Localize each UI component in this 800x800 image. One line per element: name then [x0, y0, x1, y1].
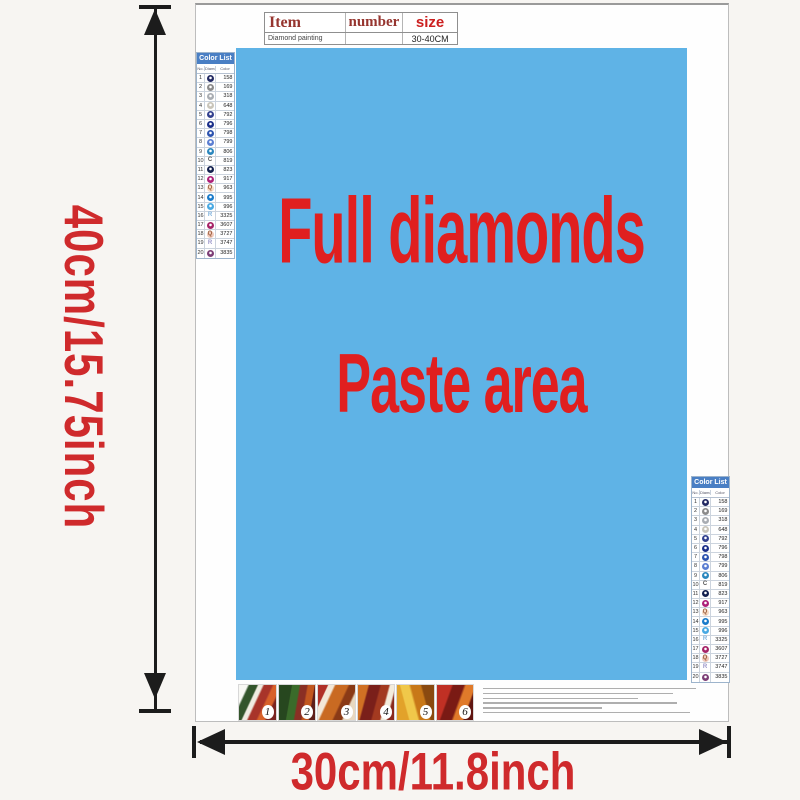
color-row-number: 13 — [197, 184, 205, 192]
diamond-symbol-cell — [205, 249, 216, 258]
color-list-title: Color List — [692, 477, 729, 488]
color-row-number: 16 — [197, 212, 205, 220]
color-row: 2169 — [692, 507, 729, 516]
dmc-color-code: 169 — [216, 84, 234, 90]
color-row-number: 19 — [197, 239, 205, 247]
color-list-rows: 11582169331846485792679677988799980610C8… — [692, 498, 729, 682]
dmc-color-code: 917 — [216, 176, 234, 182]
dmc-color-code: 796 — [216, 121, 234, 127]
color-row: 7798 — [692, 553, 729, 562]
dmc-color-code: 3727 — [711, 655, 729, 661]
color-row: 10C819 — [197, 157, 234, 166]
color-row-number: 7 — [692, 553, 700, 561]
arrow-line — [154, 9, 158, 710]
diamond-symbol-cell — [700, 544, 711, 552]
diamond-symbol-letter: Q — [207, 231, 214, 238]
dmc-color-code: 3325 — [711, 637, 729, 643]
step-thumbnail-6: 6 — [436, 684, 475, 721]
color-row-number: 1 — [692, 498, 700, 506]
color-row-number: 6 — [692, 544, 700, 552]
diamond-symbol-icon — [702, 563, 709, 570]
diamond-symbol-icon — [207, 166, 214, 173]
diamond-symbol-icon — [207, 130, 214, 137]
diamond-symbol-icon — [702, 572, 709, 579]
diamond-symbol-letter: R — [703, 636, 707, 643]
color-row-number: 17 — [692, 645, 700, 653]
color-row-number: 14 — [692, 617, 700, 625]
color-row: 203835 — [692, 673, 729, 682]
arrow-right-icon — [699, 729, 727, 755]
diamond-symbol-cell — [205, 129, 216, 137]
color-row: 19R3747 — [197, 239, 234, 248]
diamond-symbol-cell — [205, 74, 216, 82]
diamond-symbol-cell — [700, 498, 711, 506]
diamond-symbol-cell — [205, 221, 216, 229]
size-header: size — [403, 13, 457, 32]
col-no: No. — [692, 490, 700, 495]
diamond-symbol-cell — [700, 599, 711, 607]
diamond-symbol-cell: C — [205, 157, 216, 165]
diamond-symbol-icon — [702, 545, 709, 552]
diamond-symbol-cell — [205, 166, 216, 174]
diamond-symbol-icon — [702, 508, 709, 515]
color-row-number: 4 — [692, 526, 700, 534]
diamond-symbol-cell: R — [205, 239, 216, 247]
step-thumbnail-4: 4 — [357, 684, 396, 721]
dmc-color-code: 963 — [711, 609, 729, 615]
color-row-number: 20 — [197, 249, 205, 258]
diamond-symbol-icon — [207, 111, 214, 118]
color-row-number: 5 — [692, 535, 700, 543]
color-row: 18Q3727 — [197, 230, 234, 239]
diamond-symbol-letter: R — [208, 212, 212, 219]
diamond-symbol-cell — [700, 553, 711, 561]
dmc-color-code: 318 — [216, 93, 234, 99]
color-row: 13Q963 — [692, 608, 729, 617]
diamond-symbol-cell: R — [700, 636, 711, 644]
diamond-symbol-icon — [702, 535, 709, 542]
color-row: 3318 — [692, 516, 729, 525]
color-row-number: 12 — [692, 599, 700, 607]
color-row-number: 3 — [197, 92, 205, 100]
step-number-badge: 6 — [459, 705, 471, 719]
dmc-color-code: 648 — [216, 103, 234, 109]
diamond-symbol-cell — [205, 120, 216, 128]
color-row-number: 4 — [197, 102, 205, 110]
col-color: Color — [216, 66, 234, 71]
dmc-color-code: 169 — [711, 508, 729, 514]
color-row: 3318 — [197, 92, 234, 101]
diamond-symbol-icon — [207, 93, 214, 100]
diamond-symbol-cell — [205, 175, 216, 183]
color-row: 8799 — [197, 138, 234, 147]
color-list-rows: 11582169331846485792679677988799980610C8… — [197, 74, 234, 258]
color-row-number: 2 — [692, 507, 700, 515]
item-table-header-row: Item number size — [265, 13, 457, 33]
diamond-symbol-icon — [702, 517, 709, 524]
color-row-number: 18 — [692, 654, 700, 662]
diamond-symbol-icon — [207, 250, 214, 257]
color-row-number: 9 — [692, 572, 700, 580]
item-table-value-row: Diamond painting 30-40CM — [265, 33, 457, 44]
color-row-number: 8 — [692, 562, 700, 570]
dmc-color-code: 3835 — [711, 674, 729, 680]
color-row: 6796 — [197, 120, 234, 129]
color-row: 11823 — [197, 166, 234, 175]
step-thumbnail-3: 3 — [317, 684, 356, 721]
diamond-symbol-cell — [700, 516, 711, 524]
diamond-symbol-cell: Q — [205, 184, 216, 192]
step-thumbnail-2: 2 — [278, 684, 317, 721]
color-row: 16R3325 — [197, 212, 234, 221]
color-row: 15996 — [692, 627, 729, 636]
diamond-symbol-cell — [700, 535, 711, 543]
diamond-symbol-cell: R — [205, 212, 216, 220]
dmc-color-code: 3747 — [711, 664, 729, 670]
fine-print-line — [483, 712, 690, 713]
color-row: 2169 — [197, 83, 234, 92]
dmc-color-code: 3747 — [216, 240, 234, 246]
diamond-symbol-icon — [207, 139, 214, 146]
dmc-color-code: 996 — [711, 628, 729, 634]
dmc-color-code: 963 — [216, 185, 234, 191]
width-dimension-label: 30cm/11.8inch — [291, 742, 576, 800]
col-color: Color — [711, 490, 729, 495]
diamond-symbol-icon — [207, 222, 214, 229]
dmc-color-code: 3727 — [216, 231, 234, 237]
step-number-badge: 3 — [341, 705, 353, 719]
dmc-color-code: 158 — [216, 75, 234, 81]
dmc-color-code: 995 — [711, 619, 729, 625]
color-row: 16R3325 — [692, 636, 729, 645]
diamond-symbol-icon — [207, 75, 214, 82]
diamond-symbol-icon — [702, 499, 709, 506]
color-row: 5792 — [197, 111, 234, 120]
step-thumbnail-1: 1 — [238, 684, 277, 721]
color-row: 11823 — [692, 590, 729, 599]
number-value — [346, 33, 404, 44]
color-row: 10C819 — [692, 581, 729, 590]
step-number-badge: 4 — [380, 705, 392, 719]
diamond-symbol-cell: Q — [205, 230, 216, 238]
diamond-symbol-letter: Q — [702, 609, 709, 616]
diamond-symbol-icon — [207, 148, 214, 155]
color-row-number: 18 — [197, 230, 205, 238]
color-row-number: 14 — [197, 193, 205, 201]
diamond-symbol-letter: C — [703, 581, 707, 588]
paste-area-title-line1: Full diamonds — [236, 177, 687, 284]
diamond-symbol-cell — [700, 673, 711, 682]
dmc-color-code: 648 — [711, 527, 729, 533]
diamond-symbol-icon — [702, 646, 709, 653]
diamond-symbol-cell — [205, 111, 216, 119]
color-row: 203835 — [197, 249, 234, 258]
color-row-number: 9 — [197, 148, 205, 156]
color-row: 7798 — [197, 129, 234, 138]
diamond-symbol-icon — [207, 194, 214, 201]
step-number-badge: 2 — [301, 705, 313, 719]
col-diamond: Diamond — [205, 66, 216, 71]
color-row-number: 15 — [692, 627, 700, 635]
color-row: 12917 — [692, 599, 729, 608]
diamond-symbol-icon — [702, 554, 709, 561]
dmc-color-code: 3325 — [216, 213, 234, 219]
paste-area-title-line2: Paste area — [236, 337, 687, 433]
dmc-color-code: 799 — [711, 563, 729, 569]
col-diamond: Diamond — [700, 490, 711, 495]
color-row-number: 2 — [197, 83, 205, 91]
dmc-color-code: 796 — [711, 545, 729, 551]
color-row: 12917 — [197, 175, 234, 184]
diamond-symbol-cell — [205, 138, 216, 146]
diamond-symbol-cell — [700, 590, 711, 598]
height-dimension-label: 40cm/15.75inch — [52, 205, 114, 530]
diamond-symbol-letter: C — [208, 157, 212, 164]
dmc-color-code: 995 — [216, 195, 234, 201]
color-row-number: 11 — [692, 590, 700, 598]
color-row: 173607 — [692, 645, 729, 654]
fine-print-line — [483, 693, 673, 694]
diamond-symbol-icon — [702, 600, 709, 607]
product-size-diagram: 40cm/15.75inch Item number size Diamond … — [0, 0, 800, 800]
diamond-symbol-icon — [207, 84, 214, 91]
diamond-symbol-cell — [205, 193, 216, 201]
color-row: 15996 — [197, 203, 234, 212]
diamond-symbol-cell — [700, 645, 711, 653]
col-no: No. — [197, 66, 205, 71]
step-number-badge: 1 — [262, 705, 274, 719]
dmc-color-code: 819 — [711, 582, 729, 588]
diamond-symbol-letter: R — [703, 664, 707, 671]
dmc-color-code: 806 — [711, 573, 729, 579]
color-row: 14995 — [197, 193, 234, 202]
diamond-symbol-icon — [702, 618, 709, 625]
instructions-fine-print — [483, 688, 696, 717]
diamond-symbol-cell — [205, 102, 216, 110]
size-value: 30-40CM — [403, 33, 457, 44]
number-header: number — [346, 13, 404, 32]
diamond-symbol-icon — [702, 526, 709, 533]
color-row-number: 8 — [197, 138, 205, 146]
diamond-symbol-letter: Q — [702, 655, 709, 662]
color-row-number: 15 — [197, 203, 205, 211]
color-row-number: 11 — [197, 166, 205, 174]
arrow-end-cap — [727, 726, 731, 758]
color-row: 1158 — [197, 74, 234, 83]
color-row-number: 20 — [692, 673, 700, 682]
diamond-symbol-cell — [700, 572, 711, 580]
diamond-symbol-icon — [207, 176, 214, 183]
color-row: 4648 — [197, 102, 234, 111]
dmc-color-code: 996 — [216, 204, 234, 210]
dmc-color-code: 3835 — [216, 250, 234, 256]
step-thumbnails: 123456 — [238, 684, 474, 721]
arrow-down-icon — [144, 673, 166, 699]
dmc-color-code: 3607 — [216, 222, 234, 228]
arrow-end-cap — [192, 726, 196, 758]
diamond-symbol-cell: Q — [700, 654, 711, 662]
diamond-symbol-icon — [207, 121, 214, 128]
diamond-symbol-cell: C — [700, 581, 711, 589]
color-row-number: 1 — [197, 74, 205, 82]
item-value: Diamond painting — [265, 33, 346, 44]
step-thumbnail-5: 5 — [396, 684, 435, 721]
color-row-number: 16 — [692, 636, 700, 644]
color-row-number: 13 — [692, 608, 700, 616]
dmc-color-code: 917 — [711, 600, 729, 606]
color-row-number: 10 — [197, 157, 205, 165]
color-row: 9806 — [692, 572, 729, 581]
diamond-symbol-icon — [207, 102, 214, 109]
color-list-column-headers: No. Diamond Color — [197, 64, 234, 74]
color-row-number: 19 — [692, 663, 700, 671]
color-list-column-headers: No. Diamond Color — [692, 488, 729, 498]
diamond-symbol-cell: Q — [700, 608, 711, 616]
color-row-number: 6 — [197, 120, 205, 128]
fine-print-line — [483, 698, 638, 699]
color-row: 8799 — [692, 562, 729, 571]
dmc-color-code: 3607 — [711, 646, 729, 652]
color-row: 9806 — [197, 148, 234, 157]
dmc-color-code: 798 — [711, 554, 729, 560]
fine-print-line — [483, 688, 696, 689]
color-list-right: Color List No. Diamond Color 11582169331… — [691, 476, 730, 683]
diamond-symbol-icon — [207, 203, 214, 210]
color-list-title: Color List — [197, 53, 234, 64]
paste-area: Full diamonds Paste area — [236, 48, 687, 680]
color-list-left: Color List No. Diamond Color 11582169331… — [196, 52, 235, 259]
dmc-color-code: 318 — [711, 517, 729, 523]
color-row-number: 3 — [692, 516, 700, 524]
dmc-color-code: 806 — [216, 149, 234, 155]
color-row: 6796 — [692, 544, 729, 553]
diamond-symbol-cell — [205, 92, 216, 100]
color-row: 18Q3727 — [692, 654, 729, 663]
color-row-number: 10 — [692, 581, 700, 589]
dmc-color-code: 823 — [216, 167, 234, 173]
color-row-number: 17 — [197, 221, 205, 229]
item-info-table: Item number size Diamond painting 30-40C… — [264, 12, 458, 45]
diamond-symbol-letter: R — [208, 240, 212, 247]
diamond-symbol-cell — [205, 83, 216, 91]
color-row: 1158 — [692, 498, 729, 507]
color-row-number: 12 — [197, 175, 205, 183]
item-header: Item — [265, 13, 346, 32]
diamond-symbol-cell — [700, 526, 711, 534]
dmc-color-code: 158 — [711, 499, 729, 505]
diamond-symbol-letter: Q — [207, 185, 214, 192]
diamond-symbol-cell — [205, 203, 216, 211]
diamond-symbol-cell — [700, 562, 711, 570]
arrow-end-cap — [139, 709, 171, 713]
fine-print-line — [483, 707, 602, 708]
dmc-color-code: 792 — [216, 112, 234, 118]
diamond-symbol-icon — [702, 627, 709, 634]
diamond-symbol-icon — [702, 674, 709, 681]
diamond-symbol-cell: R — [700, 663, 711, 671]
dmc-color-code: 819 — [216, 158, 234, 164]
color-row-number: 5 — [197, 111, 205, 119]
dmc-color-code: 798 — [216, 130, 234, 136]
diamond-symbol-cell — [205, 148, 216, 156]
fine-print-line — [483, 702, 677, 703]
color-row: 14995 — [692, 617, 729, 626]
dmc-color-code: 792 — [711, 536, 729, 542]
color-row: 4648 — [692, 526, 729, 535]
diamond-symbol-icon — [702, 590, 709, 597]
color-row: 173607 — [197, 221, 234, 230]
color-row: 19R3747 — [692, 663, 729, 672]
diamond-symbol-cell — [700, 617, 711, 625]
diamond-symbol-cell — [700, 627, 711, 635]
canvas-sheet: Item number size Diamond painting 30-40C… — [195, 3, 729, 722]
diamond-symbol-cell — [700, 507, 711, 515]
color-row: 13Q963 — [197, 184, 234, 193]
color-row: 5792 — [692, 535, 729, 544]
step-number-badge: 5 — [420, 705, 432, 719]
dmc-color-code: 823 — [711, 591, 729, 597]
color-row-number: 7 — [197, 129, 205, 137]
dmc-color-code: 799 — [216, 139, 234, 145]
